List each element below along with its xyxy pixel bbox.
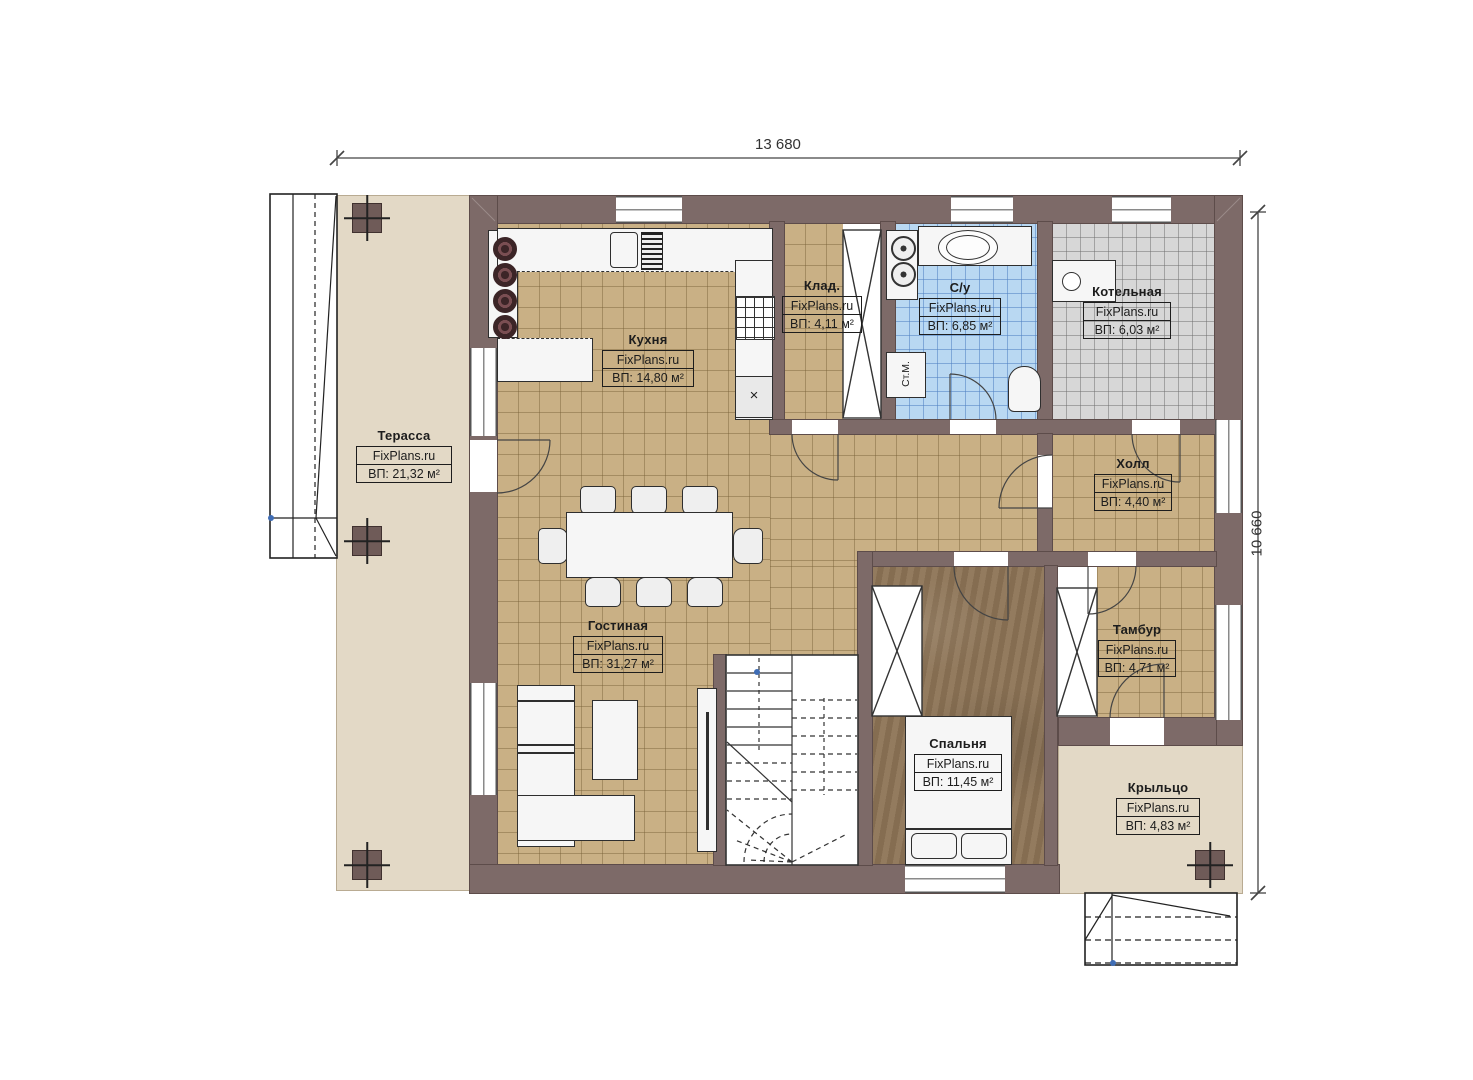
room-area: ВП: 4,11 м² <box>783 314 861 332</box>
dining-chair <box>687 577 723 607</box>
bed-blanket-line <box>906 828 1011 830</box>
tambour-door-gap <box>1088 552 1136 566</box>
dining-chair <box>636 577 672 607</box>
sofa-horizontal <box>517 795 635 841</box>
room-label-porch: Крыльцо FixPlans.ru ВП: 4,83 м² <box>1116 780 1200 835</box>
dining-chair <box>733 528 763 564</box>
room-label-tambour: Тамбур FixPlans.ru ВП: 4,71 м² <box>1098 622 1176 677</box>
room-label-bedroom: Спальня FixPlans.ru ВП: 11,45 м² <box>914 736 1002 791</box>
pillow <box>961 833 1007 859</box>
watermark: FixPlans.ru <box>1099 641 1175 658</box>
room-name: Крыльцо <box>1116 780 1200 795</box>
coffee-table <box>592 700 638 780</box>
room-label-boiler: Котельная FixPlans.ru ВП: 6,03 м² <box>1083 284 1171 339</box>
watermark: FixPlans.ru <box>1095 475 1171 492</box>
burner-icon <box>493 263 517 287</box>
burner-icon <box>493 315 517 339</box>
dining-chair <box>538 528 568 564</box>
oven-grill <box>735 296 775 340</box>
washer-drum-icon <box>891 236 916 261</box>
room-name: Гостиная <box>573 618 663 633</box>
watermark: FixPlans.ru <box>915 755 1001 772</box>
room-area: ВП: 14,80 м² <box>603 368 693 386</box>
room-label-terrace: Терасса FixPlans.ru ВП: 21,32 м² <box>356 428 452 483</box>
room-area: ВП: 4,83 м² <box>1117 816 1199 834</box>
entrance-door-gap <box>1110 718 1164 745</box>
room-name: Клад. <box>782 278 862 293</box>
bath-sink-inner <box>946 235 990 260</box>
dimension-height: 10 660 <box>1249 499 1266 569</box>
terrace-steps <box>268 194 337 558</box>
room-area: ВП: 11,45 м² <box>915 772 1001 790</box>
window-kitchen-top <box>616 196 682 223</box>
toilet <box>1008 366 1041 412</box>
kitchen-sink <box>610 232 638 268</box>
watermark: FixPlans.ru <box>783 297 861 314</box>
window-kitchen-left <box>470 348 497 436</box>
kitchen-cabinet-x: × <box>735 376 773 418</box>
wall-bedroom-right <box>1045 566 1057 865</box>
room-label-storage: Клад. FixPlans.ru ВП: 4,11 м² <box>782 278 862 333</box>
dining-chair <box>585 577 621 607</box>
burner-icon <box>493 289 517 313</box>
room-area: ВП: 4,71 м² <box>1099 658 1175 676</box>
storage-door-gap <box>792 420 838 434</box>
kitchen-counter-lower <box>497 338 593 382</box>
watermark: FixPlans.ru <box>920 299 1000 316</box>
watermark: FixPlans.ru <box>1084 303 1170 320</box>
dimension-width: 13 680 <box>755 136 801 153</box>
terrace-pillar <box>352 526 382 556</box>
room-label-hall: Холл FixPlans.ru ВП: 4,40 м² <box>1094 456 1172 511</box>
room-name: Тамбур <box>1098 622 1176 637</box>
bedroom-door-gap <box>954 552 1008 566</box>
room-label-bathroom: С/у FixPlans.ru ВП: 6,85 м² <box>919 280 1001 335</box>
porch-steps <box>1085 893 1237 966</box>
dining-table <box>566 512 733 578</box>
window-tambour-right <box>1215 605 1242 720</box>
room-name: Холл <box>1094 456 1172 471</box>
sofa-cushion-line <box>518 744 574 746</box>
watermark: FixPlans.ru <box>357 447 451 464</box>
watermark: FixPlans.ru <box>603 351 693 368</box>
terrace-pillar <box>352 203 382 233</box>
wall-bedroom-left <box>858 552 872 865</box>
terrace-pillar <box>352 850 382 880</box>
boiler-dial-icon <box>1062 272 1081 291</box>
room-area: ВП: 6,85 м² <box>920 316 1000 334</box>
burner-icon <box>493 237 517 261</box>
terrace-door-gap <box>470 440 497 492</box>
stairwell-top-floor <box>770 566 858 655</box>
room-name: Кухня <box>602 332 694 347</box>
floor-plan: × Ст.М. <box>0 0 1473 1080</box>
room-name: Спальня <box>914 736 1002 751</box>
boiler-door-gap <box>1132 420 1180 434</box>
window-bathroom-top <box>951 196 1013 223</box>
window-hall-right <box>1215 420 1242 513</box>
room-label-kitchen: Кухня FixPlans.ru ВП: 14,80 м² <box>602 332 694 387</box>
room-area: ВП: 21,32 м² <box>357 464 451 482</box>
room-label-living: Гостиная FixPlans.ru ВП: 31,27 м² <box>573 618 663 673</box>
pillow <box>911 833 957 859</box>
room-name: Терасса <box>356 428 452 443</box>
sink-drainer <box>641 232 663 270</box>
room-area: ВП: 4,40 м² <box>1095 492 1171 510</box>
washing-machine-label: Ст.М. <box>900 352 912 396</box>
bathroom-door-gap <box>950 420 996 434</box>
window-bedroom-bottom <box>905 865 1005 893</box>
room-name: Котельная <box>1083 284 1171 299</box>
cabinet-mark: × <box>750 387 759 404</box>
window-living-left <box>470 683 497 795</box>
corridor-floor <box>770 434 1038 566</box>
room-area: ВП: 31,27 м² <box>574 654 662 672</box>
room-area: ВП: 6,03 м² <box>1084 320 1170 338</box>
sofa-cushion-line <box>518 752 574 754</box>
porch-pillar <box>1195 850 1225 880</box>
washer-drum-icon <box>891 262 916 287</box>
wall-bedroom-top <box>858 552 1216 566</box>
room-name: С/у <box>919 280 1001 295</box>
tv-screen <box>706 712 709 830</box>
sofa-cushion-line <box>518 700 574 702</box>
hall-door-gap <box>1038 455 1052 508</box>
watermark: FixPlans.ru <box>574 637 662 654</box>
watermark: FixPlans.ru <box>1117 799 1199 816</box>
window-boiler-top <box>1112 196 1171 223</box>
